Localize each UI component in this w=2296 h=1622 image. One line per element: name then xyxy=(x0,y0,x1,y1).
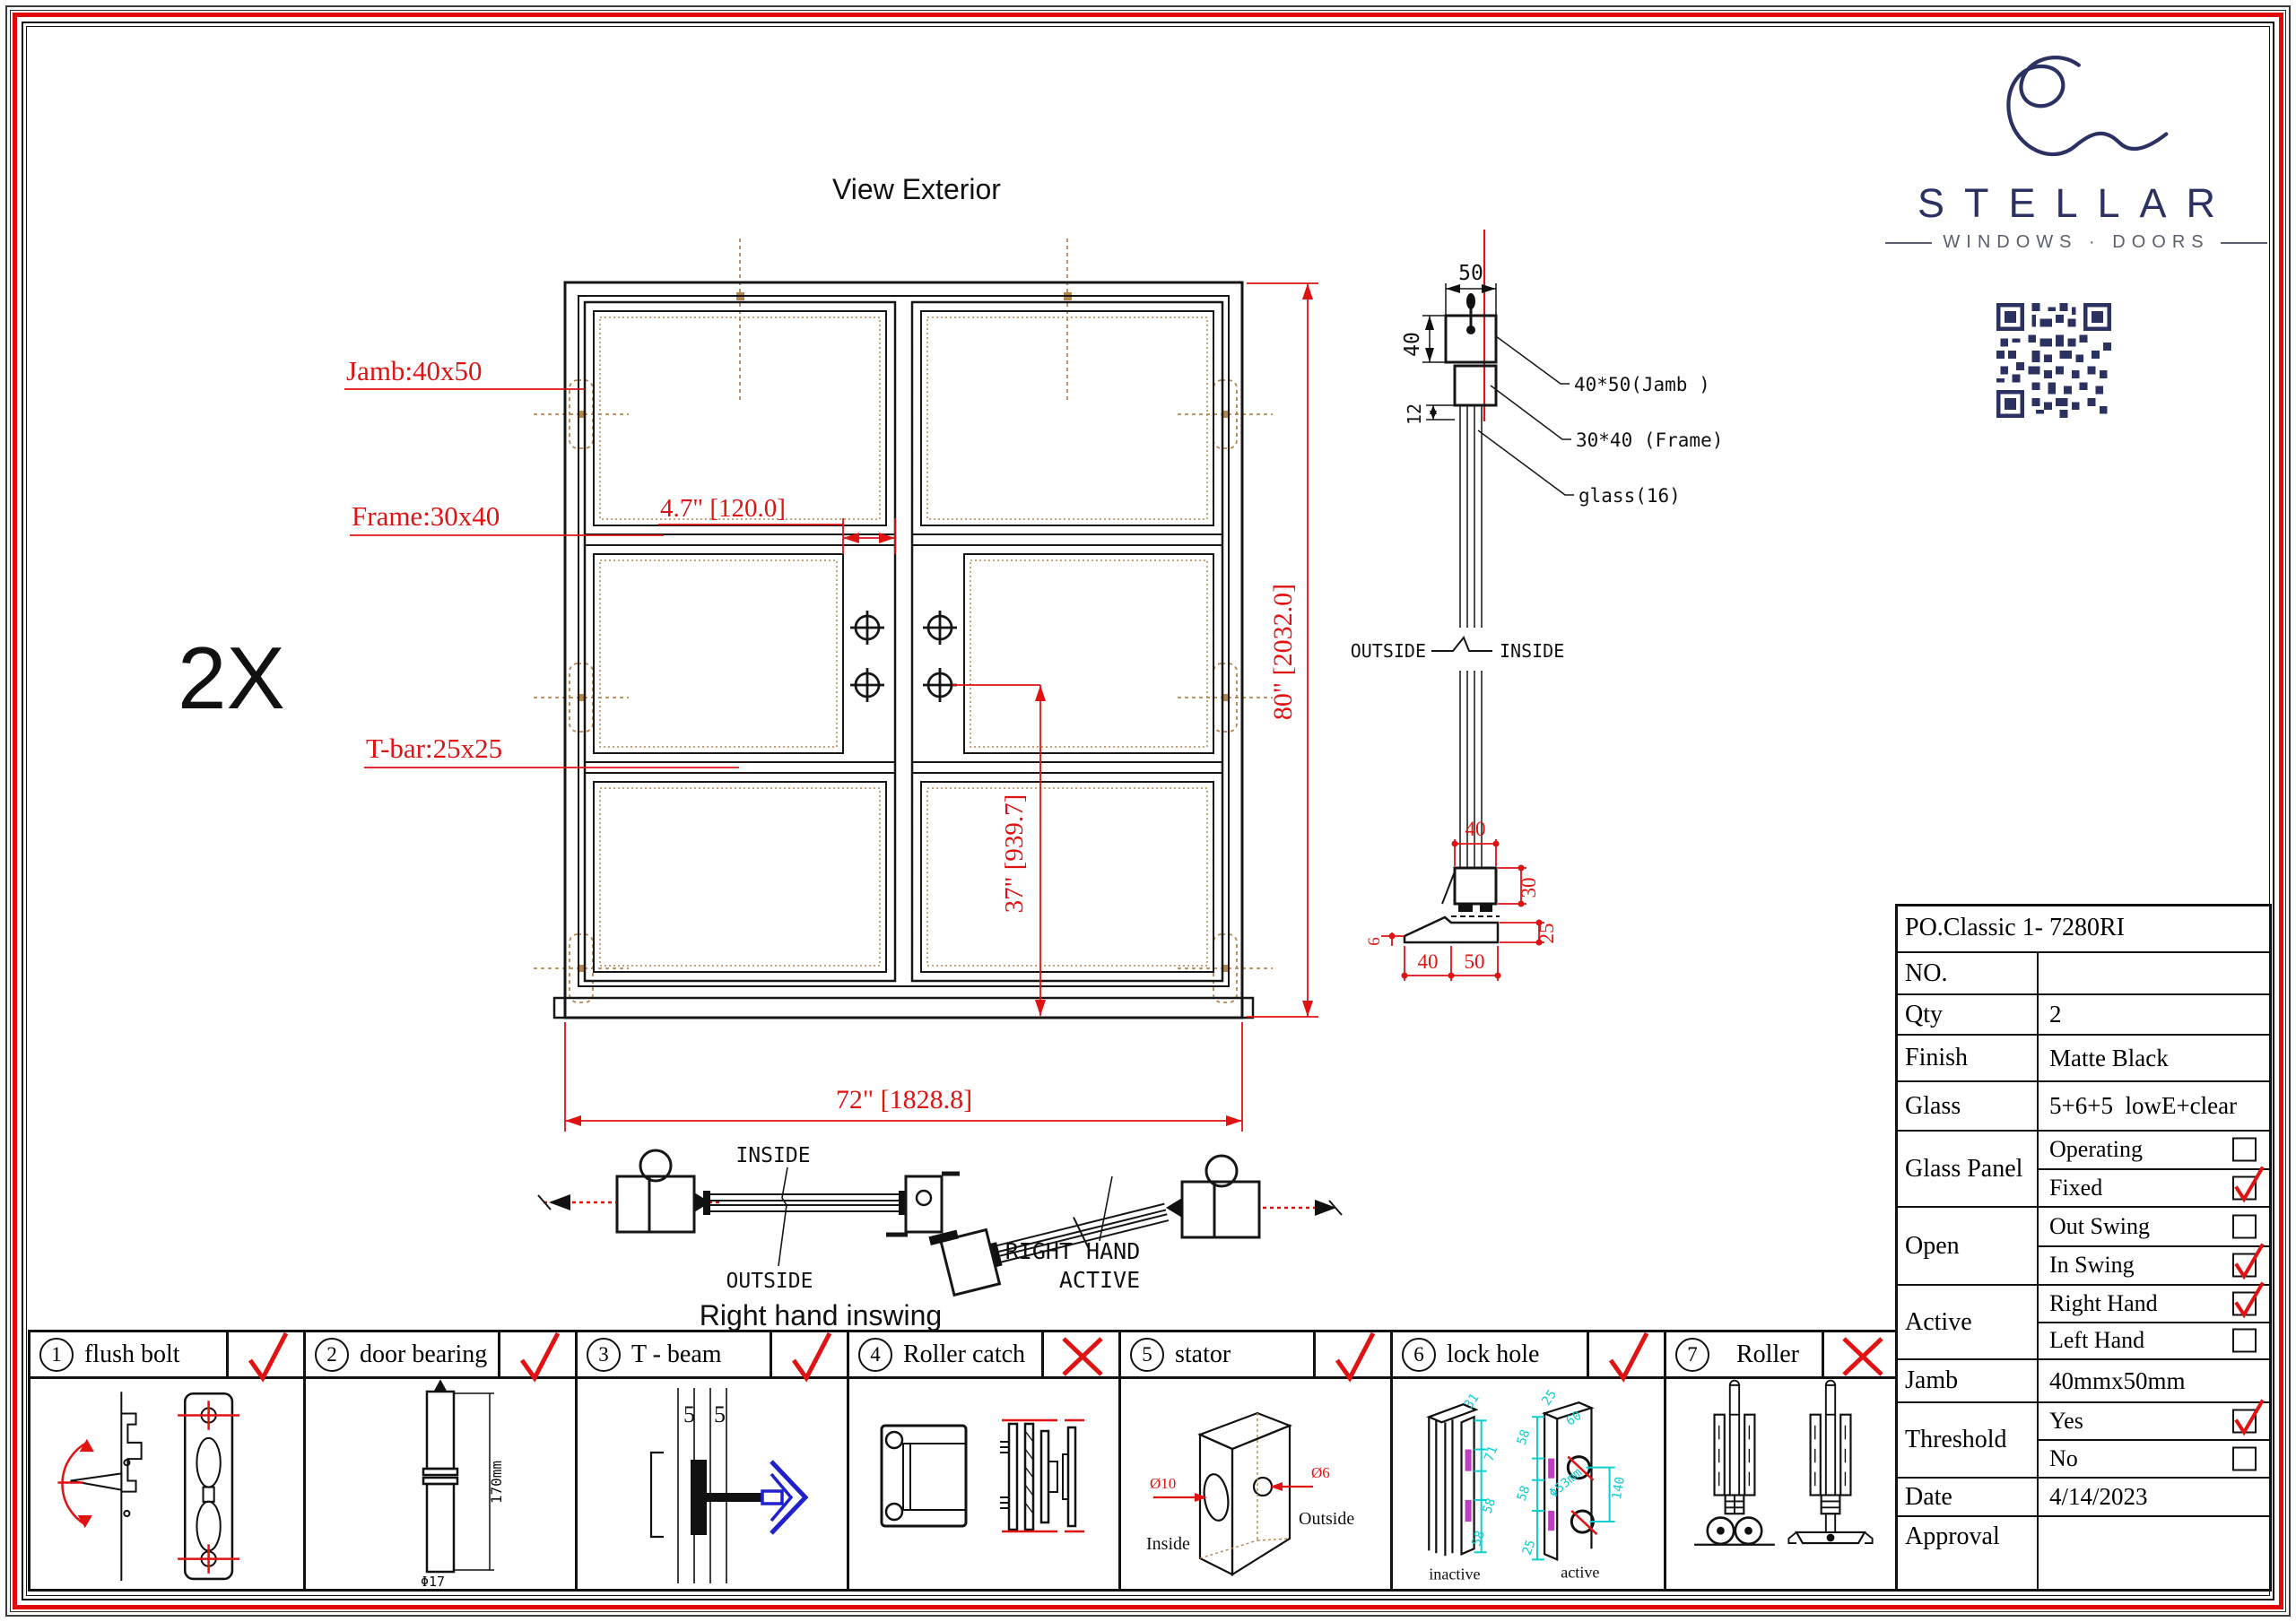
width-dim: 72" [1828.8] xyxy=(836,1085,972,1115)
section-inside-label: INSIDE xyxy=(1500,640,1564,662)
elevation-dimensions xyxy=(344,283,1318,1132)
hinge-left xyxy=(534,380,629,1002)
check-cell xyxy=(1587,1332,1664,1376)
check-cell xyxy=(1313,1332,1390,1376)
plan-active-label-1: RIGHT HAND xyxy=(1005,1238,1141,1264)
table-row-threshold: Threshold Yes No xyxy=(1898,1401,2269,1477)
tbeam-dim-left: 5 xyxy=(683,1401,695,1427)
check-mark-icon xyxy=(241,1330,291,1380)
hardware-cell-stator: 5 stator xyxy=(1118,1332,1390,1589)
option-no: No xyxy=(2039,1439,2269,1477)
sill xyxy=(554,998,1253,1018)
checkbox xyxy=(2232,1138,2257,1162)
table-row-glass-panel: Glass Panel Operating Fixed xyxy=(1898,1130,2269,1206)
table-row-qty: Qty 2 xyxy=(1898,993,2269,1034)
item-label: T - beam xyxy=(631,1340,722,1369)
t-bars xyxy=(585,534,1222,773)
cross-mark-icon xyxy=(1057,1330,1107,1380)
spec-table: PO.Classic 1- 7280RI NO. Qty 2 Finish Ma… xyxy=(1895,904,2272,1592)
item-label: Roller catch xyxy=(903,1340,1025,1369)
lock-dim: 31 xyxy=(1462,1391,1483,1411)
stator-drawing: Ø10 Ø6 Inside Outside xyxy=(1121,1379,1390,1592)
check-mark-icon xyxy=(2227,1239,2266,1279)
qr-code xyxy=(1996,303,2111,418)
section-frame-label: 30*40 (Frame) xyxy=(1576,429,1723,451)
plan-title: Right hand inswing xyxy=(700,1299,942,1331)
table-row-date: Date 4/14/2023 xyxy=(1898,1477,2269,1515)
tbeam-dim-right: 5 xyxy=(714,1401,726,1427)
check-mark-icon xyxy=(1328,1330,1378,1380)
leaf-right xyxy=(912,302,1222,981)
lock-hole-drawing: 31 71 58 58 inactive xyxy=(1393,1379,1664,1593)
lock-inactive-caption: inactive xyxy=(1429,1565,1480,1583)
lock-dim: 71 xyxy=(1482,1444,1500,1463)
checkbox xyxy=(2232,1291,2257,1315)
lock-dim: 58 xyxy=(1469,1529,1488,1548)
t-beam-drawing: 5 5 xyxy=(578,1379,847,1592)
item-number-badge: 2 xyxy=(315,1338,349,1372)
glass-lites xyxy=(594,311,1213,972)
brand-tagline: WINDOWS · DOORS xyxy=(1943,232,2209,253)
hardware-cell-door-bearing: 2 door bearing 170mm Φ17 xyxy=(303,1332,575,1589)
company-logo: STELLAR WINDOWS · DOORS xyxy=(1879,47,2274,253)
check-mark-icon xyxy=(2227,1395,2266,1435)
jamb-inner xyxy=(578,296,1229,986)
hardware-cell-t-beam: 3 T - beam 5 5 xyxy=(575,1332,847,1589)
leaf-left xyxy=(585,302,895,981)
check-cell xyxy=(1041,1332,1118,1376)
door-bearing-drawing: 170mm Φ17 xyxy=(306,1379,575,1592)
table-row-po: PO.Classic 1- 7280RI xyxy=(1898,906,2269,951)
table-row-open: Open Out Swing In Swing xyxy=(1898,1206,2269,1284)
plan-active-label-2: ACTIVE xyxy=(1059,1267,1140,1293)
option-left-hand: Left Hand xyxy=(2039,1322,2269,1359)
view-title: View Exterior xyxy=(832,173,1001,205)
jamb-callout: Jamb:40x50 xyxy=(346,355,483,386)
section-dim-50: 50 xyxy=(1458,262,1483,285)
plan-view xyxy=(538,1150,1342,1297)
option-fixed: Fixed xyxy=(2039,1168,2269,1207)
sill-dim-25: 25 xyxy=(1535,924,1558,944)
table-row-no: NO. xyxy=(1898,951,2269,993)
item-number-badge: 3 xyxy=(587,1338,621,1372)
table-row-active: Active Right Hand Left Hand xyxy=(1898,1284,2269,1358)
table-row-finish: Finish Matte Black xyxy=(1898,1034,2269,1080)
check-cell xyxy=(1822,1332,1899,1376)
checkbox xyxy=(2232,1329,2257,1353)
lock-dim: 25 xyxy=(1520,1538,1539,1557)
stator-outside-label: Outside xyxy=(1299,1509,1354,1529)
lock-dim: 58 xyxy=(1515,1484,1534,1503)
sill-dim-6: 6 xyxy=(1365,937,1384,946)
item-label: door bearing xyxy=(360,1340,487,1369)
section-glass-label: glass(16) xyxy=(1578,485,1681,507)
check-mark-icon xyxy=(1602,1330,1652,1380)
lock-active-caption: active xyxy=(1561,1563,1599,1581)
section-detail xyxy=(1405,230,1574,942)
sill-dim-30: 30 xyxy=(1518,878,1540,898)
stator-dia-small: Ø6 xyxy=(1311,1464,1330,1481)
sill-dim-b50: 50 xyxy=(1465,950,1485,973)
check-mark-icon xyxy=(785,1330,835,1380)
section-dim-12: 12 xyxy=(1404,403,1425,425)
checkbox xyxy=(2232,1447,2257,1471)
check-cell xyxy=(770,1332,847,1376)
item-label: stator xyxy=(1175,1340,1231,1369)
door-elevation xyxy=(534,239,1273,1018)
lock-dim: 25 xyxy=(1539,1387,1560,1408)
copies-marker: 2X xyxy=(178,629,285,727)
stile-dim: 4.7" [120.0] xyxy=(660,494,786,523)
handle-height-dim: 37" [939.7] xyxy=(1000,794,1029,914)
dim-arrowheads xyxy=(565,283,1313,1126)
hardware-cell-roller: 7 Roller xyxy=(1664,1332,1899,1589)
section-dim-40: 40 xyxy=(1401,332,1424,357)
hinge-marks xyxy=(534,239,1273,1002)
bearing-length-dim: 170mm xyxy=(488,1461,505,1504)
hardware-cell-flush-bolt: 1 flush bolt xyxy=(30,1332,303,1589)
item-label: lock hole xyxy=(1447,1340,1539,1369)
sill-dim-top: 40 xyxy=(1465,818,1486,840)
lock-dim: 140 xyxy=(1610,1476,1628,1501)
hinge-right xyxy=(1178,380,1273,1002)
brand-name: STELLAR xyxy=(1879,180,2274,227)
checkbox xyxy=(2232,1253,2257,1278)
section-outside-label: OUTSIDE xyxy=(1351,640,1426,662)
option-right-hand: Right Hand xyxy=(2039,1286,2269,1322)
tagline-rule-right xyxy=(2221,242,2267,244)
frame-callout: Frame:30x40 xyxy=(352,500,500,532)
item-label: Roller xyxy=(1736,1340,1799,1369)
check-cell xyxy=(226,1332,303,1376)
glass-beading xyxy=(600,317,1207,966)
hardware-cell-roller-catch: 4 Roller catch xyxy=(847,1332,1118,1589)
check-mark-icon xyxy=(513,1330,563,1380)
checkbox xyxy=(2232,1409,2257,1434)
sill-dim-b40: 40 xyxy=(1418,950,1439,973)
table-row-glass: Glass 5+6+5 lowE+clear xyxy=(1898,1080,2269,1130)
item-number-badge: 6 xyxy=(1402,1338,1436,1372)
item-number-badge: 1 xyxy=(39,1338,74,1372)
plan-inside-label: INSIDE xyxy=(735,1144,810,1167)
check-mark-icon xyxy=(2227,1161,2266,1201)
stator-dia-big: Ø10 xyxy=(1150,1475,1176,1492)
stator-inside-label: Inside xyxy=(1146,1534,1190,1554)
hardware-cell-lock-hole: 6 lock hole xyxy=(1390,1332,1664,1589)
plan-outside-label: OUTSIDE xyxy=(726,1270,813,1293)
item-number-badge: 5 xyxy=(1130,1338,1164,1372)
drawing-sheet: View Exterior 2X xyxy=(0,0,2296,1622)
item-label: flush bolt xyxy=(84,1340,180,1369)
cross-mark-icon xyxy=(1837,1330,1887,1380)
item-number-badge: 7 xyxy=(1675,1338,1709,1372)
checkbox xyxy=(2232,1214,2257,1238)
tagline-rule-left xyxy=(1885,242,1932,244)
checkbox xyxy=(2232,1175,2257,1200)
handle-set xyxy=(850,611,957,702)
po-number: PO.Classic 1- 7280RI xyxy=(1898,906,2130,951)
option-yes: Yes xyxy=(2039,1403,2269,1439)
check-mark-icon xyxy=(2227,1277,2266,1316)
hardware-checklist: 1 flush bolt xyxy=(28,1330,1899,1592)
roller-catch-drawing xyxy=(849,1379,1118,1592)
table-row-jamb: Jamb 40mmx50mm xyxy=(1898,1358,2269,1401)
tbar-callout: T-bar:25x25 xyxy=(366,733,502,764)
jamb-outer xyxy=(565,282,1242,1018)
check-cell xyxy=(498,1332,575,1376)
section-jamb-label: 40*50(Jamb ) xyxy=(1574,374,1710,395)
item-number-badge: 4 xyxy=(858,1338,892,1372)
roller-drawing xyxy=(1666,1379,1899,1563)
logo-mark-icon xyxy=(1964,47,2188,181)
table-row-approval: Approval xyxy=(1898,1515,2269,1589)
flush-bolt-drawing xyxy=(30,1379,303,1594)
bearing-dia-dim: Φ17 xyxy=(421,1574,445,1590)
height-dim: 80" [2032.0] xyxy=(1268,584,1298,720)
lock-dim: 58 xyxy=(1515,1427,1534,1446)
